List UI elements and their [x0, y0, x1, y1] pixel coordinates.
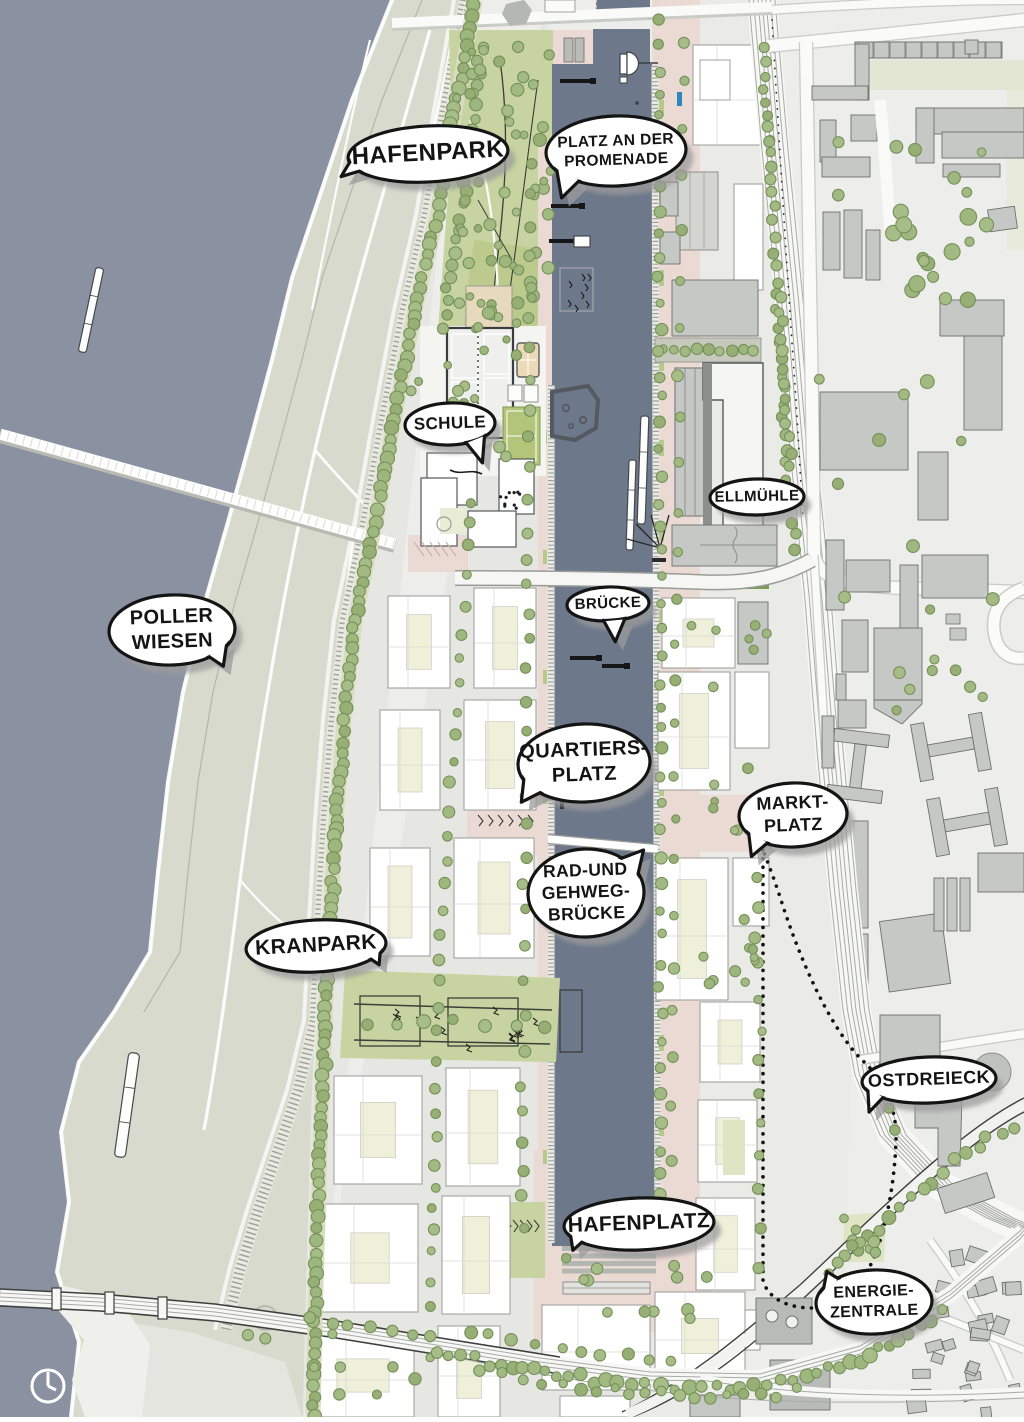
svg-text:POLLER: POLLER — [129, 604, 213, 629]
svg-text:BRÜCKE: BRÜCKE — [548, 902, 626, 925]
svg-text:MARKT-: MARKT- — [756, 791, 829, 814]
svg-text:OSTDREIECK: OSTDREIECK — [868, 1067, 991, 1091]
svg-text:ENERGIE-: ENERGIE- — [833, 1282, 914, 1302]
svg-text:RAD-UND: RAD-UND — [543, 858, 628, 881]
svg-text:PROMENADE: PROMENADE — [564, 150, 669, 171]
svg-text:PLATZ: PLATZ — [552, 763, 618, 787]
svg-text:ELLMÜHLE: ELLMÜHLE — [714, 487, 799, 505]
svg-text:ZENTRALE: ZENTRALE — [830, 1302, 919, 1322]
svg-text:QUARTIERS-: QUARTIERS- — [519, 737, 648, 763]
svg-text:PLATZ: PLATZ — [764, 814, 823, 836]
svg-text:WIESEN: WIESEN — [131, 629, 213, 654]
svg-text:BRÜCKE: BRÜCKE — [574, 594, 641, 613]
svg-text:GEHWEG-: GEHWEG- — [541, 880, 630, 903]
svg-text:SCHULE: SCHULE — [414, 412, 487, 434]
